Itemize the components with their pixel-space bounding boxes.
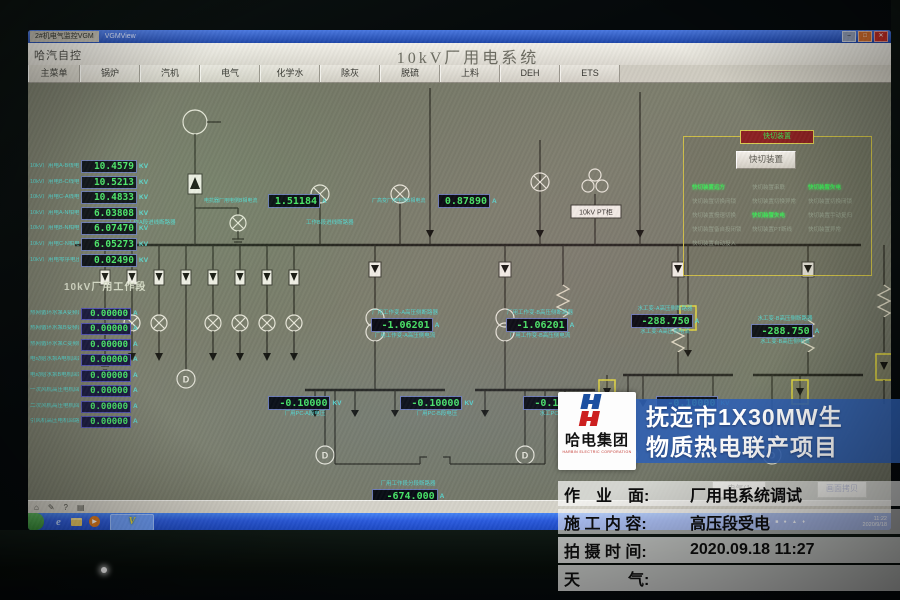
load-value: 0.00000 bbox=[81, 401, 131, 413]
status-item: 快切装置串联 bbox=[752, 181, 796, 195]
pc-a-label: 厂用PC-A段电压 bbox=[285, 411, 326, 418]
load-unit: A bbox=[133, 403, 138, 410]
voltage-unit: KV bbox=[139, 179, 148, 186]
voltage-row: 10kV厂用电B-N相电压6.07470KV bbox=[30, 222, 148, 235]
project-line-2: 物质热电联产项目 bbox=[646, 432, 900, 462]
reactor-icon bbox=[183, 110, 207, 134]
sg-b-unit: A bbox=[815, 328, 820, 335]
pc-b-label: 厂用PC-B段电压 bbox=[417, 411, 458, 418]
load-value: 0.00000 bbox=[81, 339, 131, 351]
voltage-label: 10kV厂用电C-A线电压 bbox=[30, 194, 79, 201]
load-row: 热网循环水泵C变频回路电流0.00000A bbox=[30, 338, 138, 351]
home-icon[interactable]: ⌂ bbox=[34, 502, 39, 514]
voltage-row: 10kV厂用电B-C线电压10.5213KV bbox=[30, 176, 148, 189]
voltage-label: 10kV厂用电零序电压 bbox=[30, 257, 79, 264]
sg-a-current-label: 水工变-A高压侧电流 bbox=[640, 329, 690, 336]
tx-a-unit: A bbox=[435, 322, 440, 329]
incoming-b-label: 工作B段进线断路器 bbox=[306, 218, 354, 226]
info-value: 厂用电系统调试 bbox=[690, 482, 802, 506]
load-label: 热网循环水泵B变频回路电流 bbox=[30, 325, 79, 332]
status-item: 快切装置远方 bbox=[692, 181, 742, 195]
harbin-electric-logo bbox=[574, 392, 620, 428]
pc-b-unit: KV bbox=[464, 400, 473, 407]
load-value: 0.00000 bbox=[81, 416, 131, 428]
load-label: 二次风机高压电机回路电流 bbox=[30, 403, 79, 410]
tx-a-current-label: 厂用工作变-A高压侧电流 bbox=[375, 333, 436, 340]
load-label: 电动给水泵B电机回路电流 bbox=[30, 372, 79, 379]
load-unit: A bbox=[133, 387, 138, 394]
chart-icon[interactable]: ▤ bbox=[77, 502, 85, 514]
load-row: 电动给水泵B电机回路电流0.00000A bbox=[30, 369, 138, 382]
load-row: 二次风机高压电机回路电流0.00000A bbox=[30, 400, 138, 413]
info-label: 施 工 内 容: bbox=[564, 510, 676, 534]
sg-a-unit: A bbox=[695, 318, 700, 325]
status-item: 快切装置失电 bbox=[752, 209, 796, 223]
pc-a-unit: KV bbox=[332, 400, 341, 407]
tx-b-value: -1.06201 bbox=[506, 318, 568, 332]
sg-b-current-label: 水工变-B高压侧电流 bbox=[760, 339, 810, 346]
sg-a-value: -288.750 bbox=[631, 314, 693, 328]
load-value: 0.00000 bbox=[81, 370, 131, 382]
play-icon: ▶ bbox=[89, 516, 100, 527]
sg-b-measure: 水工变-B高压侧断路器 -288.750A 水工变-B高压侧电流 bbox=[725, 316, 845, 346]
folder-icon[interactable] bbox=[70, 515, 83, 528]
standby-current: 0.87890A bbox=[438, 194, 497, 208]
voltage-label: 10kV厂用电A-B线电压 bbox=[30, 163, 79, 170]
voltage-row: 10kV厂用电A-B线电压10.4579KV bbox=[30, 160, 148, 173]
status-item: 快切装置失电 bbox=[808, 181, 852, 195]
load-value: 0.00000 bbox=[81, 323, 131, 335]
info-label: 作 业 面: bbox=[564, 482, 676, 506]
pc-b-voltage: -0.10000KV 厂用PC-B段电压 bbox=[377, 396, 497, 418]
fast-switch-col-2: 快切装置串联 快切装置切换异常 快切装置失电 快切装置PT断线 bbox=[752, 181, 796, 237]
maximize-button[interactable]: □ bbox=[858, 31, 872, 42]
voltage-value: 10.5213 bbox=[81, 176, 137, 189]
pt-cabinet-label: 10kV PT柜 bbox=[579, 208, 613, 217]
tx-b-measure: 厂用工作变-B高压侧断路器 -1.06201A 厂用工作变-B高压侧电流 bbox=[480, 310, 600, 340]
fast-switch-col-1: 快切装置远方 快切装置切换闭锁 快切装置慢速切换 快切装置备自投闭锁 快切装置自… bbox=[692, 181, 742, 251]
load-value: 0.00000 bbox=[81, 385, 131, 397]
edit-icon[interactable]: ✎ bbox=[48, 502, 55, 514]
help-icon[interactable]: ? bbox=[64, 502, 68, 514]
menu-bar: 主菜单 锅炉 汽机 电气 化学水 除灰 脱硫 上料 DEH ETS bbox=[28, 65, 891, 83]
load-unit: A bbox=[133, 341, 138, 348]
reactor-current: 1.51184A bbox=[268, 194, 327, 208]
monitor-bezel-top bbox=[0, 0, 900, 30]
load-row: 热网循环水泵B变频回路电流0.00000A bbox=[30, 322, 138, 335]
voltage-value: 0.02490 bbox=[81, 254, 137, 267]
close-button[interactable]: ✕ bbox=[874, 31, 888, 42]
voltage-value: 10.4833 bbox=[81, 191, 137, 204]
load-unit: A bbox=[133, 325, 138, 332]
status-item: 快切装置慢速切换 bbox=[692, 209, 742, 223]
reactor-current-value: 1.51184 bbox=[268, 194, 320, 208]
status-item: 快切装置PT断线 bbox=[752, 223, 796, 237]
breaker-icon[interactable] bbox=[536, 230, 544, 238]
info-value: 2020.09.18 11:27 bbox=[690, 541, 815, 559]
reactor-current-label: 电抗器厂用电侧B相电流 bbox=[204, 198, 257, 205]
info-label: 拍 摄 时 间: bbox=[564, 538, 676, 562]
svg-text:D: D bbox=[322, 451, 329, 461]
voltage-label: 10kV厂用电C-N相电压 bbox=[30, 241, 79, 248]
svg-text:D: D bbox=[183, 375, 190, 385]
pt-icon bbox=[582, 180, 594, 192]
reactor-current-unit: A bbox=[322, 198, 327, 205]
pc-a-value: -0.10000 bbox=[268, 396, 330, 410]
voltage-unit: KV bbox=[139, 163, 148, 170]
window-titlebar: 2#机电气监控VGM VGMView – □ ✕ bbox=[28, 30, 891, 43]
tie-unit: A bbox=[440, 493, 445, 500]
fast-switch-panel: 快切装置 快切装置 快切装置远方 快切装置切换闭锁 快切装置慢速切换 快切装置备… bbox=[683, 136, 872, 276]
voltage-row: 10kV厂用电零序电压0.02490KV bbox=[30, 254, 148, 267]
menu-item-boiler[interactable]: 锅炉 bbox=[80, 65, 140, 82]
load-unit: A bbox=[133, 418, 138, 425]
tx-a-measure: 厂用工作变-A高压侧断路器 -1.06201A 厂用工作变-A高压侧电流 bbox=[345, 310, 465, 340]
winding-icon bbox=[878, 285, 890, 317]
info-value: 高压段受电 bbox=[690, 510, 770, 534]
standby-current-value: 0.87890 bbox=[438, 194, 490, 208]
status-item: 快切装置备自投闭锁 bbox=[692, 223, 742, 237]
load-unit: A bbox=[133, 372, 138, 379]
voltage-label: 10kV厂用电A-N相电压 bbox=[30, 210, 79, 217]
tie-breaker-label: 厂用工作段分段断路器 bbox=[380, 481, 435, 488]
voltage-label: 10kV厂用电B-N相电压 bbox=[30, 225, 79, 232]
info-label: 天 气: bbox=[564, 566, 676, 590]
load-value: 0.00000 bbox=[81, 308, 131, 320]
brand-label: 哈汽自控 bbox=[34, 47, 82, 63]
load-label: 电动给水泵A电机回路电流 bbox=[30, 356, 79, 363]
info-row-time: 拍 摄 时 间: 2020.09.18 11:27 bbox=[558, 537, 900, 563]
project-title-band: 抚远市1X30MW生 物质热电联产项目 bbox=[636, 399, 900, 463]
tx-a-value: -1.06201 bbox=[371, 318, 433, 332]
sg-a-breaker-label: 水工变-A高压侧断路器 bbox=[637, 306, 692, 313]
load-row: 电动给水泵A电机回路电流0.00000A bbox=[30, 353, 138, 366]
sg-b-value: -288.750 bbox=[751, 324, 813, 338]
menu-item-chem-water[interactable]: 化学水 bbox=[260, 65, 320, 82]
fast-switch-col-3: 快切装置失电 快切装置切换闭锁 快切装置手动复归 快切装置异常 bbox=[808, 181, 852, 237]
load-label: 热网循环水泵A变频回路电流 bbox=[30, 310, 79, 317]
voltage-value: 6.07470 bbox=[81, 222, 137, 235]
breaker-icon[interactable] bbox=[426, 230, 434, 238]
info-row-worksite: 作 业 面: 厂用电系统调试 bbox=[558, 481, 900, 506]
info-row-weather: 天 气: bbox=[558, 565, 900, 591]
brand-name: 哈电集团 bbox=[565, 429, 629, 450]
menu-item-ash[interactable]: 除灰 bbox=[320, 65, 380, 82]
app-header: 哈汽自控 10kV厂用电系统 bbox=[28, 43, 891, 66]
bus-label: 10kV厂用工作段 bbox=[64, 278, 146, 293]
standby-current-label: 厂高变厂用电侧B相电流 bbox=[372, 198, 425, 205]
status-item: 快切装置切换闭锁 bbox=[692, 195, 742, 209]
taskbar-app-button[interactable]: V bbox=[110, 514, 154, 530]
svg-text:D: D bbox=[522, 451, 529, 461]
media-player-icon[interactable]: ▶ bbox=[88, 515, 101, 528]
window-tab: 2#机电气监控VGM bbox=[30, 31, 99, 42]
menu-item-ets[interactable]: ETS bbox=[560, 65, 620, 82]
tie-breaker[interactable] bbox=[420, 457, 427, 464]
sg-b-breaker-label: 水工变-B高压侧断路器 bbox=[757, 316, 812, 323]
load-row: 一次风机高压电机回路电流0.00000A bbox=[30, 384, 138, 397]
voltage-row: 10kV厂用电C-A线电压10.4833KV bbox=[30, 191, 148, 204]
fast-switch-button[interactable]: 快切装置 bbox=[736, 151, 796, 169]
load-label: 热网循环水泵C变频回路电流 bbox=[30, 341, 79, 348]
load-unit: A bbox=[133, 356, 138, 363]
voltage-row: 10kV厂用电A-N相电压6.03808KV bbox=[30, 207, 148, 220]
pc-b-value: -0.10000 bbox=[400, 396, 462, 410]
status-item: 快切装置手动复归 bbox=[808, 209, 852, 223]
sg-a-measure: 水工变-A高压侧断路器 -288.750A 水工变-A高压侧电流 bbox=[605, 306, 725, 336]
window-controls: – □ ✕ bbox=[842, 31, 888, 42]
load-unit: A bbox=[133, 310, 138, 317]
menu-item-turbine[interactable]: 汽机 bbox=[140, 65, 200, 82]
project-line-1: 抚远市1X30MW生 bbox=[646, 402, 900, 432]
app-name: VGMView bbox=[105, 33, 136, 40]
load-row: 引风机高压电机回路电流0.00000A bbox=[30, 415, 138, 428]
start-button[interactable] bbox=[28, 513, 44, 530]
menu-item-feeding[interactable]: 上料 bbox=[440, 65, 500, 82]
voltage-value: 6.03808 bbox=[81, 207, 137, 220]
voltage-value: 6.05273 bbox=[81, 238, 137, 251]
info-row-content: 施 工 内 容: 高压段受电 bbox=[558, 509, 900, 534]
status-item: 快切装置异常 bbox=[808, 223, 852, 237]
pc-a-voltage: -0.10000KV 厂用PC-A段电压 bbox=[245, 396, 365, 418]
minimize-button[interactable]: – bbox=[842, 31, 856, 42]
voltage-unit: KV bbox=[139, 241, 148, 248]
tx-b-current-label: 厂用工作变-B高压侧电流 bbox=[510, 333, 571, 340]
menu-item-deh[interactable]: DEH bbox=[500, 65, 560, 82]
voltage-unit: KV bbox=[139, 257, 148, 264]
status-item: 快切装置切换闭锁 bbox=[808, 195, 852, 209]
load-label: 引风机高压电机回路电流 bbox=[30, 418, 79, 425]
monitor-bezel-left bbox=[0, 0, 28, 600]
voltage-unit: KV bbox=[139, 194, 148, 201]
voltage-label: 10kV厂用电B-C线电压 bbox=[30, 179, 79, 186]
menu-item-main[interactable]: 主菜单 bbox=[28, 65, 80, 82]
fast-switch-title-badge: 快切装置 bbox=[740, 130, 814, 144]
tx-b-unit: A bbox=[570, 322, 575, 329]
brand-subtitle: HARBIN ELECTRIC CORPORATION bbox=[562, 450, 631, 454]
load-row: 热网循环水泵A变频回路电流0.00000A bbox=[30, 307, 138, 320]
company-logo-card: 哈电集团 HARBIN ELECTRIC CORPORATION bbox=[558, 392, 636, 470]
menu-item-desulf[interactable]: 脱硫 bbox=[380, 65, 440, 82]
power-led bbox=[101, 567, 107, 573]
voltage-unit: KV bbox=[139, 210, 148, 217]
standby-current-unit: A bbox=[492, 198, 497, 205]
menu-item-electrical[interactable]: 电气 bbox=[200, 65, 260, 82]
browser-icon[interactable]: e bbox=[52, 515, 65, 528]
tx-b-breaker-label: 厂用工作变-B高压侧断路器 bbox=[507, 310, 573, 317]
voltage-unit: KV bbox=[139, 225, 148, 232]
status-item: 快切装置自动投入 bbox=[692, 237, 742, 251]
voltage-value: 10.4579 bbox=[81, 160, 137, 173]
load-label: 一次风机高压电机回路电流 bbox=[30, 387, 79, 394]
status-item: 快切装置切换异常 bbox=[752, 195, 796, 209]
tx-a-breaker-label: 厂用工作变-A高压侧断路器 bbox=[372, 310, 438, 317]
load-value: 0.00000 bbox=[81, 354, 131, 366]
voltage-row: 10kV厂用电C-N相电压6.05273KV bbox=[30, 238, 148, 251]
